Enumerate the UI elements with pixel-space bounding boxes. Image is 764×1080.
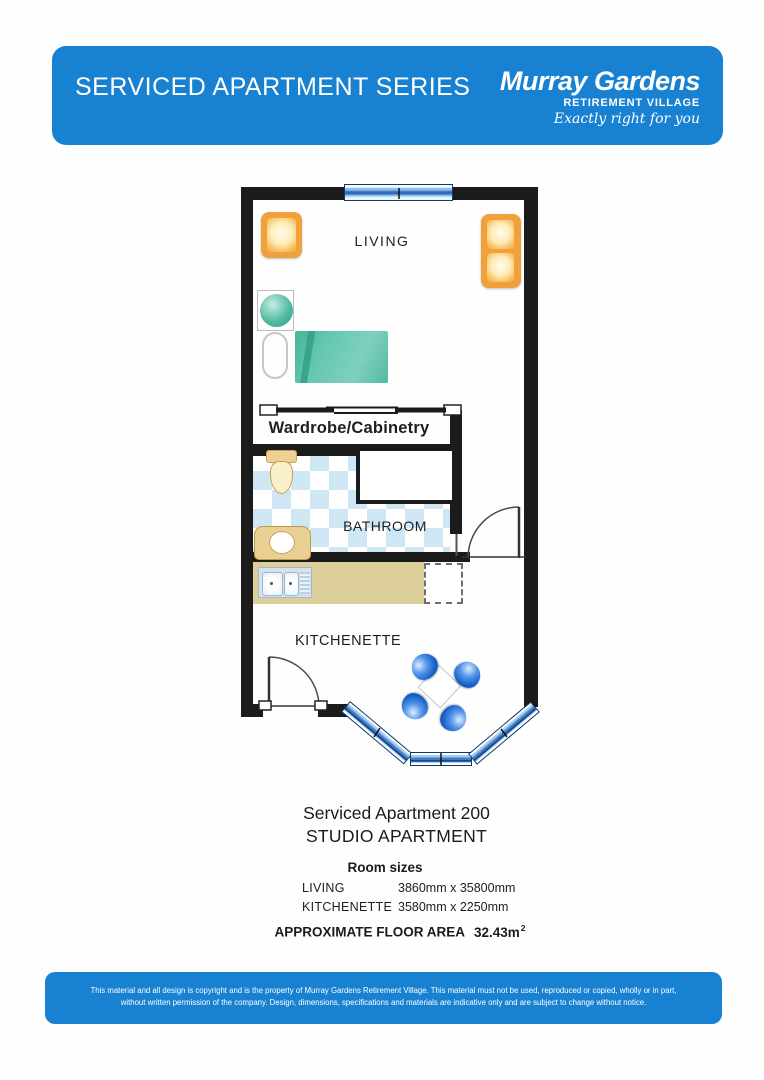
wardrobe-sliding-doors: [260, 405, 461, 415]
armchair-cushion: [267, 218, 296, 252]
apartment-type: STUDIO APARTMENT: [230, 826, 563, 847]
room-sizes-heading: Room sizes: [230, 860, 540, 875]
room-size-value: 3860mm x 35800mm: [398, 881, 515, 895]
kitchen-sink: [258, 567, 312, 598]
bay-window-right: [468, 701, 540, 764]
vanity-basin: [269, 531, 295, 554]
sink-drainer: [300, 572, 310, 594]
header-banner: SERVICED APARTMENT SERIES Murray Gardens…: [52, 46, 723, 145]
wall-right: [524, 187, 538, 707]
kitchenette-door: [259, 657, 327, 710]
sofa-cushion-bottom: [487, 253, 514, 282]
vanity: [254, 526, 311, 560]
living-label: LIVING: [332, 233, 432, 249]
disclaimer-line-2: without written permission of the compan…: [45, 997, 722, 1009]
shower: [356, 447, 456, 504]
ottoman: [262, 332, 288, 379]
bed: [295, 331, 388, 383]
brand-subtitle: RETIREMENT VILLAGE: [500, 96, 700, 110]
floor-area-value: 32.43m: [474, 925, 520, 940]
brand-block: Murray Gardens RETIREMENT VILLAGE Exactl…: [500, 66, 700, 129]
floor-area-line: APPROXIMATE FLOOR AREA32.43m2: [230, 923, 570, 940]
entry-door: [457, 507, 527, 558]
sink-drain-dot-left: [270, 582, 273, 585]
living-window: [344, 184, 453, 201]
bay-window-bottom: [410, 752, 472, 766]
room-size-name: KITCHENETTE: [302, 900, 392, 914]
bathroom-label: BATHROOM: [335, 518, 435, 534]
apartment-name: Serviced Apartment 200: [230, 803, 563, 824]
sink-drain-dot-right: [289, 582, 292, 585]
round-side-table: [260, 294, 293, 327]
sofa: [481, 214, 521, 288]
room-size-value: 3580mm x 2250mm: [398, 900, 508, 914]
sofa-cushion-top: [487, 220, 514, 249]
brand-name: Murray Gardens: [500, 66, 700, 96]
wardrobe-label: Wardrobe/Cabinetry: [264, 419, 434, 438]
series-title: SERVICED APARTMENT SERIES: [75, 73, 470, 102]
brochure-page: SERVICED APARTMENT SERIES Murray Gardens…: [0, 0, 764, 1080]
kitchenette-label: KITCHENETTE: [295, 633, 395, 649]
brand-tagline: Exactly right for you: [500, 110, 700, 129]
footer-disclaimer: This material and all design is copyrigh…: [45, 972, 722, 1024]
disclaimer-line-1: This material and all design is copyrigh…: [45, 985, 722, 997]
floor-area-exponent: 2: [521, 923, 526, 933]
floor-area-label: APPROXIMATE FLOOR AREA: [274, 925, 465, 940]
room-size-name: LIVING: [302, 881, 345, 895]
bed-fold: [299, 331, 315, 383]
wall-bottom-left-segment: [241, 704, 263, 717]
armchair: [261, 212, 302, 258]
fridge-space-dashed: [424, 563, 463, 604]
